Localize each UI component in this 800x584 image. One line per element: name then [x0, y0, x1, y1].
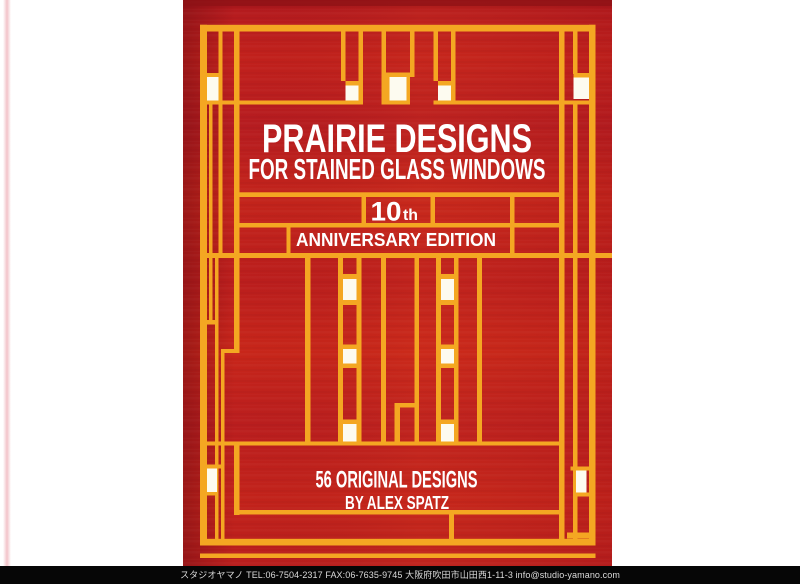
- svg-text:10: 10: [371, 197, 402, 227]
- svg-text:th: th: [403, 207, 418, 224]
- svg-text:BY ALEX SPATZ: BY ALEX SPATZ: [345, 493, 449, 513]
- svg-text:FOR STAINED GLASS WINDOWS: FOR STAINED GLASS WINDOWS: [249, 154, 546, 186]
- svg-text:56 ORIGINAL DESIGNS: 56 ORIGINAL DESIGNS: [316, 467, 478, 494]
- svg-text:ANNIVERSARY EDITION: ANNIVERSARY EDITION: [296, 229, 496, 250]
